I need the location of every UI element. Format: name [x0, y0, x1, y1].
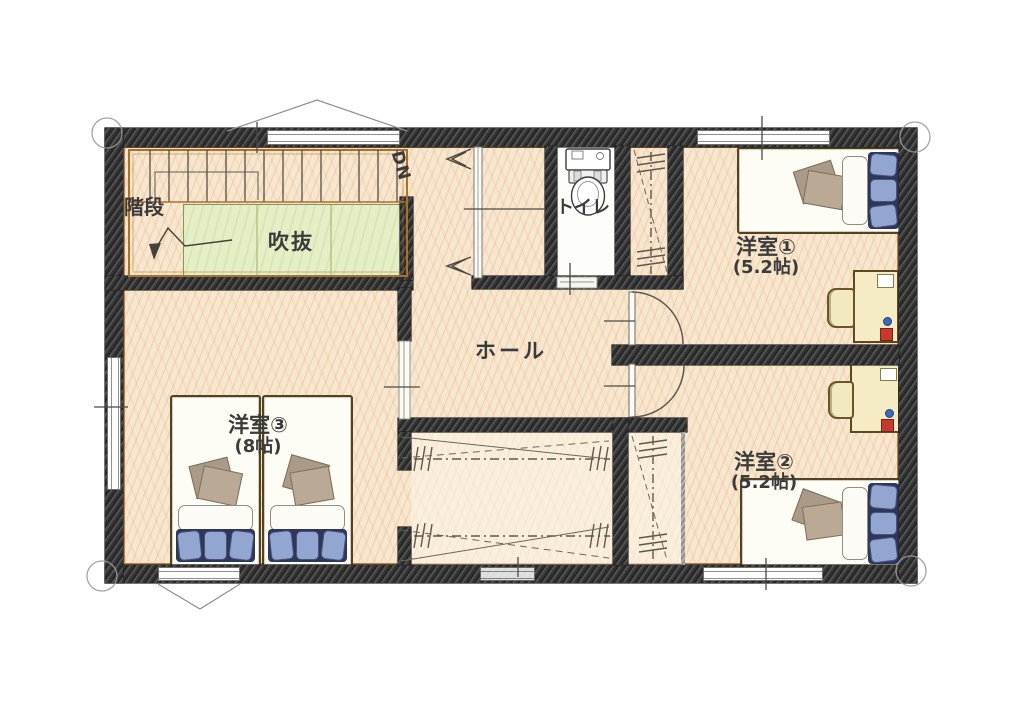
bed-cushion — [802, 501, 846, 540]
window-bottom-bedroom3 — [158, 567, 240, 581]
label-bedroom3-size: (8帖) — [188, 438, 328, 457]
window-left-bedroom3 — [107, 357, 121, 490]
wall-closet-top — [398, 418, 687, 432]
bed-cushion — [802, 170, 847, 210]
desk — [853, 270, 899, 343]
desk — [850, 363, 900, 433]
wall-void-bottom — [105, 276, 413, 290]
wall-exterior-left — [105, 128, 123, 583]
wall-closet-stub-lower — [398, 527, 411, 565]
bed-cushion — [289, 466, 334, 506]
bed-pillow — [270, 505, 345, 531]
wall-closet1-right — [668, 146, 683, 289]
bed-blanket — [176, 529, 255, 562]
closet-floor-room2 — [628, 432, 681, 565]
closet-floor-bottom — [411, 432, 613, 565]
bed-cushion — [197, 465, 243, 507]
label-hall: ホール — [475, 340, 547, 362]
window-bottom-bedroom2 — [703, 567, 823, 581]
label-bedroom2-size: (5.2帖) — [694, 474, 834, 493]
desk-item-blue — [885, 409, 894, 418]
desk-drawer — [880, 368, 897, 381]
bed-blanket — [868, 152, 899, 229]
chair — [827, 288, 855, 328]
bed-pillow — [842, 487, 868, 560]
label-void: 吹抜 — [268, 231, 314, 253]
chair — [828, 381, 854, 419]
wall-bedroom3-hall — [398, 288, 411, 341]
bed — [737, 147, 904, 234]
wall-closet2-right-thin — [681, 432, 685, 565]
label-bedroom3: 洋室③ — [188, 414, 328, 436]
label-toilet: トイレ — [556, 199, 610, 218]
label-stairs: 階段 — [124, 197, 164, 218]
floor-plan: 階段 吹抜 DN トイレ ホール 洋室① (5.2帖) 洋室② (5.2帖) 洋… — [0, 0, 1024, 709]
bed-pillow — [178, 505, 253, 531]
wall-toilet-bottom — [472, 276, 683, 289]
label-bedroom1: 洋室① — [696, 236, 836, 258]
label-bedroom1-size: (5.2帖) — [696, 259, 836, 278]
window-top-stairs — [267, 130, 400, 145]
desk-drawer — [877, 274, 894, 288]
wall-closet-right — [613, 418, 628, 565]
bed-blanket — [868, 483, 899, 564]
window-top-bedroom1 — [697, 130, 830, 145]
wall-closet-stub-upper — [398, 432, 411, 470]
desk-item-red — [880, 328, 893, 341]
wall-stair-right — [400, 197, 413, 280]
desk-item-red — [881, 419, 894, 432]
window-bottom-closet — [480, 567, 535, 581]
desk-item-blue — [883, 317, 892, 326]
wall-toilet-right — [615, 146, 630, 289]
bed-blanket — [268, 529, 347, 562]
wall-exterior-right — [899, 128, 917, 583]
wall-between-bedroom1-2 — [612, 345, 899, 365]
label-bedroom2: 洋室② — [694, 451, 834, 473]
bed-pillow — [842, 156, 868, 226]
